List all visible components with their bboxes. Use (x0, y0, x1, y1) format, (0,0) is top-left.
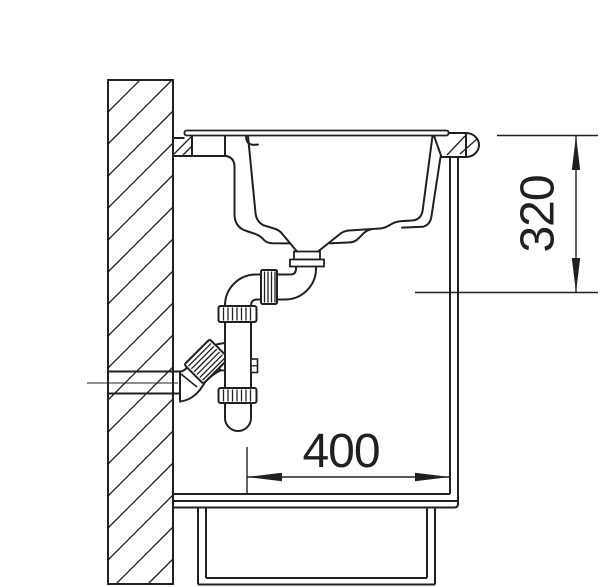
union-nut-lower (219, 388, 257, 403)
countertop-left (173, 136, 227, 157)
drain-strainer (290, 252, 324, 267)
arrowhead-right (415, 473, 450, 481)
dimension-320-label: 320 (512, 175, 565, 252)
countertop-left-hatching (174, 137, 192, 155)
union-nut-upper (219, 306, 257, 322)
union-nut-horizontal (261, 270, 277, 304)
side-tab (251, 359, 258, 373)
plinth (198, 508, 435, 585)
arrowhead-top (572, 136, 580, 171)
sink-rim (185, 131, 449, 136)
dimension-320: 320 (415, 136, 598, 293)
dimension-400: 400 (247, 425, 450, 494)
drain-elbow-and-trap-tube (219, 266, 317, 431)
sink-installation-diagram: 400 320 (0, 0, 600, 587)
wall-section (108, 80, 173, 584)
countertop-right (433, 133, 479, 157)
dimension-400-label: 400 (302, 425, 379, 478)
drawing-canvas: 400 320 (0, 0, 600, 587)
arrowhead-left (247, 473, 282, 481)
arrowhead-bottom (572, 258, 580, 293)
sink-bowl (226, 136, 441, 252)
